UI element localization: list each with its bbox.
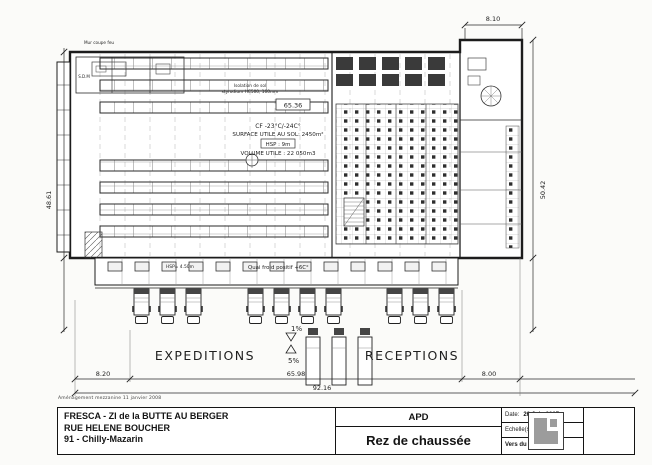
stairs bbox=[344, 198, 364, 226]
client-line-1: FRESCA - ZI de la BUTTE AU BERGER bbox=[64, 411, 329, 423]
dim-bottom-right: 8.00 bbox=[482, 370, 496, 378]
trucks-docked bbox=[132, 289, 456, 324]
slope-markers bbox=[286, 333, 296, 353]
trucks-waiting bbox=[306, 328, 372, 385]
firewall-label: Mur coupe feu bbox=[84, 40, 114, 45]
phase-label: APD bbox=[336, 408, 501, 427]
dim-bottom-mid: 65.98 bbox=[287, 370, 306, 378]
zone-receptions: RECEPTIONS bbox=[365, 348, 459, 363]
drawing-title: Rez de chaussée bbox=[336, 427, 501, 453]
drawing-id-cell: APD Rez de chaussée bbox=[336, 408, 502, 454]
dim-left: 48.61 bbox=[45, 191, 53, 210]
cold-room-height: HSP : 9m bbox=[266, 142, 291, 148]
slope-5pct: 5% bbox=[288, 357, 299, 365]
quai-label: Quai froid positif +6C° bbox=[248, 265, 309, 271]
date-label: Date: bbox=[505, 412, 519, 418]
logo-notch bbox=[547, 418, 558, 431]
room-sdm-label: S.D.M bbox=[78, 74, 90, 79]
dim-hall-width: 65.36 bbox=[284, 102, 303, 110]
dim-top-right: 8.10 bbox=[486, 15, 500, 23]
insulation-line2: styrodium HC500, 160mm bbox=[222, 89, 279, 95]
client-info: FRESCA - ZI de la BUTTE AU BERGER RUE HE… bbox=[58, 408, 336, 454]
slope-1pct: 1% bbox=[291, 325, 302, 333]
cold-room-surface: SURFACE UTILE AU SOL: 2450m² bbox=[232, 131, 323, 138]
drawing-sheet: 8.10 48.61 50.42 8.20 65.98 8.00 92.16 6… bbox=[0, 0, 652, 465]
revision-note: Aménagement mezzanine 11 janvier 2008 bbox=[58, 396, 161, 401]
ramp bbox=[85, 232, 102, 258]
title-block: FRESCA - ZI de la BUTTE AU BERGER RUE HE… bbox=[57, 407, 635, 455]
cold-room-volume: VOLUME UTILE : 22 050m3 bbox=[240, 151, 315, 157]
client-line-3: 91 - Chilly-Mazarin bbox=[64, 434, 329, 446]
company-logo bbox=[528, 412, 564, 450]
cold-room-temp: CF -23°C/-24C° bbox=[255, 123, 301, 130]
quai-height-label: HSP= 4.50m bbox=[166, 264, 194, 270]
dim-bottom-left: 8.20 bbox=[96, 370, 110, 378]
logo-c-icon bbox=[534, 418, 558, 444]
dim-bottom-total: 92.16 bbox=[313, 384, 332, 392]
logo-square bbox=[550, 419, 557, 427]
loading-dock bbox=[95, 258, 458, 288]
insulation-line1: Isolation de sol bbox=[234, 83, 266, 89]
dim-right: 50.42 bbox=[539, 181, 547, 200]
zone-expeditions: EXPEDITIONS bbox=[155, 348, 255, 363]
client-line-2: RUE HELENE BOUCHER bbox=[64, 423, 329, 435]
